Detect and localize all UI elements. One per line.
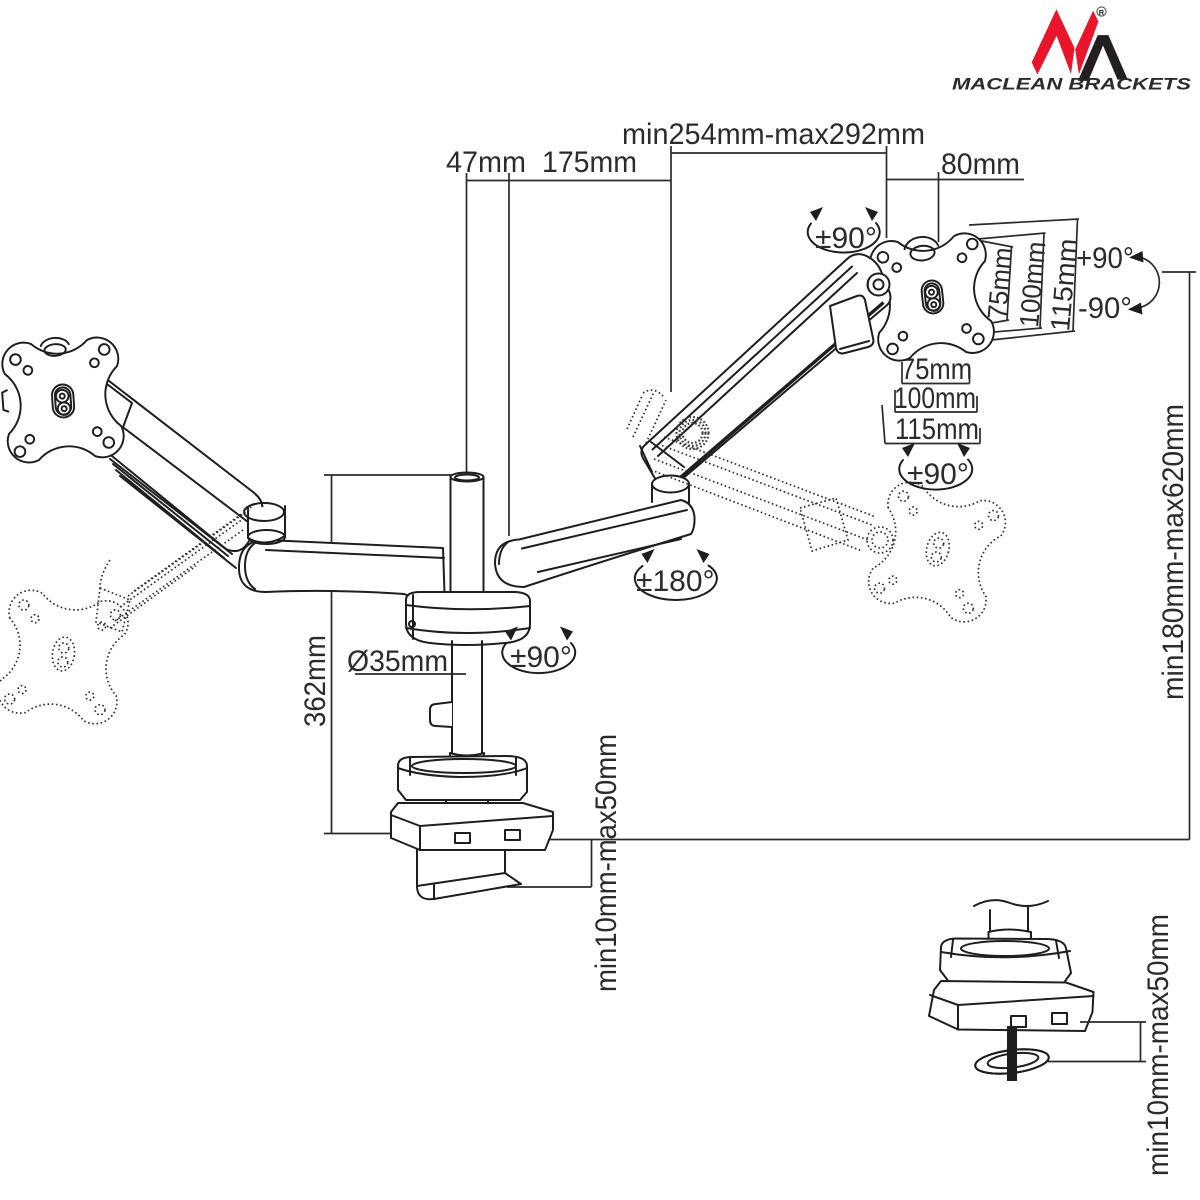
svg-text:±90°: ±90° [907, 458, 969, 491]
svg-text:100mm: 100mm [894, 382, 976, 415]
svg-text:±90°: ±90° [815, 222, 877, 255]
svg-text:47mm: 47mm [446, 146, 526, 179]
svg-text:min10mm-max50mm: min10mm-max50mm [1142, 914, 1175, 1176]
svg-text:175mm: 175mm [542, 146, 637, 179]
svg-text:±180°: ±180° [636, 565, 715, 598]
svg-text:362mm: 362mm [299, 635, 332, 727]
svg-text:min254mm-max292mm: min254mm-max292mm [622, 118, 925, 151]
svg-text:115mm: 115mm [895, 413, 979, 446]
svg-text:min180mm-max620mm: min180mm-max620mm [1157, 404, 1190, 700]
svg-text:-90°: -90° [1078, 292, 1132, 325]
svg-text:80mm: 80mm [941, 148, 1020, 181]
svg-text:Ø35mm: Ø35mm [347, 645, 448, 678]
svg-text:+90°: +90° [1076, 242, 1134, 275]
svg-text:min10mm-max50mm: min10mm-max50mm [590, 734, 623, 992]
svg-text:R: R [1099, 8, 1105, 17]
svg-text:MACLEAN BRACKETS: MACLEAN BRACKETS [952, 76, 1191, 94]
svg-text:75mm: 75mm [982, 246, 1018, 320]
svg-text:±90°: ±90° [510, 641, 572, 674]
